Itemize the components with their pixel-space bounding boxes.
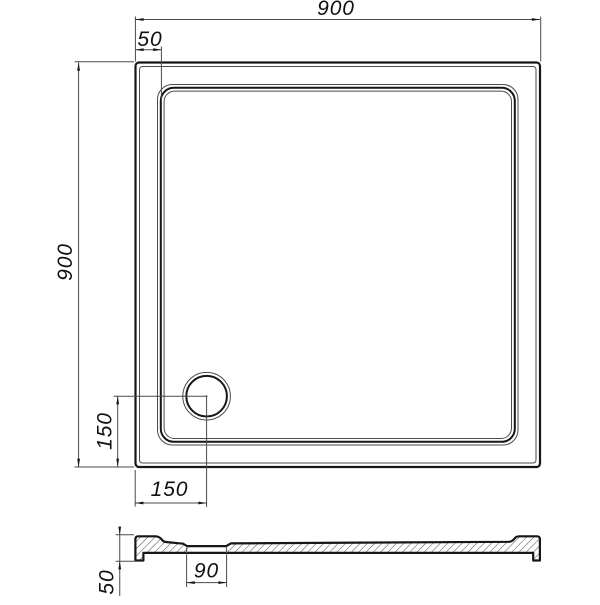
svg-text:90: 90 (194, 560, 219, 583)
svg-text:900: 900 (317, 0, 355, 20)
svg-text:50: 50 (137, 28, 162, 51)
svg-text:150: 150 (151, 478, 189, 501)
svg-text:50: 50 (95, 569, 118, 594)
svg-text:900: 900 (54, 243, 77, 281)
svg-text:150: 150 (93, 412, 116, 450)
